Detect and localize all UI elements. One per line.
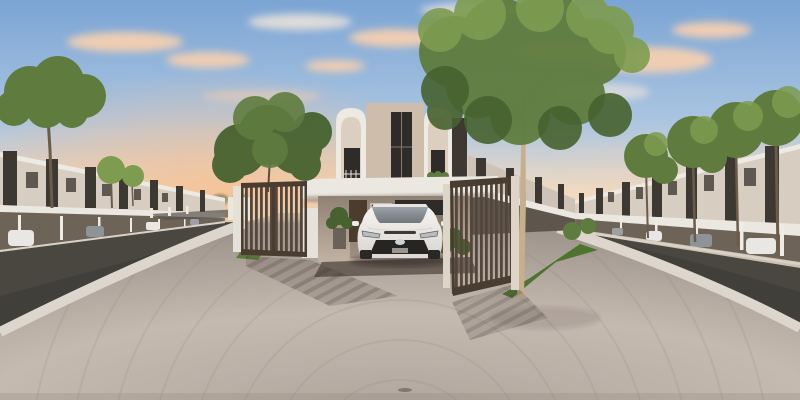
car-upper-grille <box>384 231 416 234</box>
car-bumper <box>366 254 434 258</box>
car-windshield <box>372 207 428 223</box>
nadir-band <box>0 393 800 400</box>
car-emblem <box>395 239 405 245</box>
right-gate-post-left <box>443 184 450 288</box>
paving-mark <box>398 388 412 392</box>
right-dark-panel <box>452 118 467 182</box>
car-plate <box>392 248 408 253</box>
right-gate-slats <box>451 182 513 293</box>
panorama-viewport <box>0 0 800 400</box>
car-wheel-right <box>428 250 440 259</box>
car-mirror-left <box>352 221 359 226</box>
planter-pot <box>333 228 346 249</box>
car-wheel-left <box>360 250 372 259</box>
car-roof <box>372 204 428 207</box>
right-gate-post-right <box>511 176 519 290</box>
left-gate-post <box>233 186 241 252</box>
panorama-scene <box>0 0 800 400</box>
